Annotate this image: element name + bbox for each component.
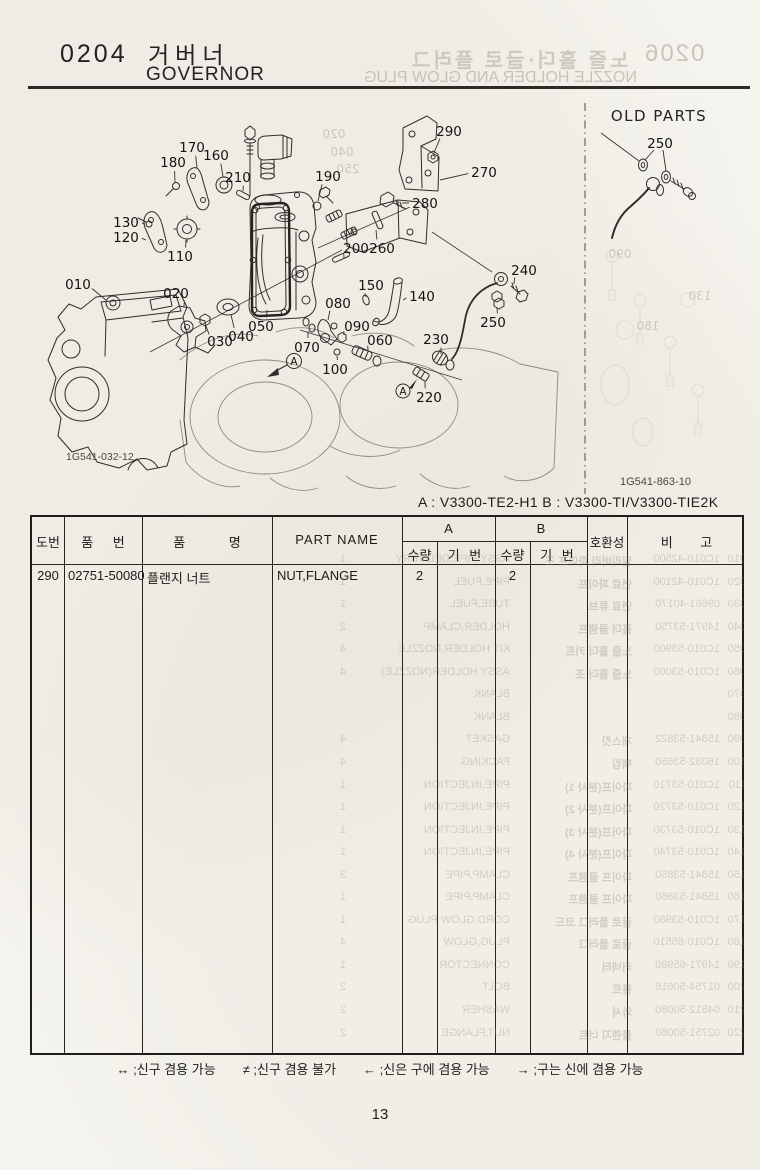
catalog-page: 0204 거버너 GOVERNOR 0206 노즐 홀더·글로 플러그 NOZZ… [0,0,760,1170]
bleed-cell: 1 [340,576,346,588]
bleed-cell: 노즐 홀더 키트 [516,643,632,659]
bleed-ghost-labels: 020040250090180130 [323,127,712,333]
assembly-axis-lines [150,207,492,380]
col-header-name-ko: 품 명 [142,532,272,551]
part-callout-160: 160 [203,148,229,164]
bleed-cell: 1 [340,779,346,791]
legend-item: → ;구는 신에 겸용 가능 [517,1059,644,1078]
bleed-cell: 1 [340,801,346,813]
bleed-section-number: 0206 [643,40,697,68]
bleed-cell: 파이프 클램프 [516,869,632,885]
bleed-cell: HOLDER,CLAMP [378,621,510,633]
bleed-row: 1PIPE,INJECTION파이프(분사 3)1C010-53730130 [322,824,744,846]
part-callout-060: 060 [367,333,393,349]
part-callout-220: 220 [416,390,442,406]
solenoid-drawing [245,126,293,196]
bleed-row: 2HOLDER,CLAMP홀더 클램프14971-53750040 [322,621,744,643]
bleed-cell: 170 [724,914,744,926]
bleed-row: 1ASSY PIPE,DELIVERY딜리버리 파이프 조1C010-42500… [322,553,744,575]
bleed-cell: CONNECTOR [378,959,510,971]
old-parts-label: OLD PARTS [611,107,707,125]
bleed-cell: 050 [724,643,744,655]
part-callout-260: 260 [369,241,395,257]
bleed-row: 1PIPE,INJECTION파이프(분사 2)1C010-53720120 [322,801,744,823]
bleed-cell: WASHER [378,1004,510,1016]
callout-leader-120 [142,238,146,240]
callout-leader-170 [196,156,197,168]
bleed-cell: 090 [724,733,744,745]
grommet-part [106,296,120,310]
callout-leader-140 [403,298,406,300]
bleed-cell: 노즐 홀더 조 [516,666,632,682]
bleed-cell: BOLT [378,981,510,993]
bleed-cell: 1C010-53900 [636,643,720,655]
old-parts-inset: OLD PARTS [601,107,707,238]
bleed-cell: 1C010-53740 [636,846,720,858]
bleed-cell: 4 [340,936,346,948]
part-callout-250: 250 [480,315,506,331]
bleed-row: 1TUBE,FUEL연료 튜브09661-40170030 [322,598,744,620]
bleed-cell: 2 [340,621,346,633]
bleed-cell: 와셔 [516,1004,632,1020]
section-number: 0204 [60,40,128,69]
col-header-part-name: PART NAME [272,532,402,547]
col-header-remarks: 비 고 [627,532,746,551]
view-marker-a-1: A [267,354,302,378]
bleed-cell: 4 [340,756,346,768]
bleed-cell: 14971-65980 [636,959,720,971]
bleed-cell: ASSY HOLDER(NOZZLE) [378,666,510,678]
bleed-cell: 3 [340,869,346,881]
bleed-row: 1CLAMP,PIPE파이프 클램프15841-53860160 [322,891,744,913]
bleed-cell: 연료 튜브 [516,598,632,614]
cell-part-no: 02751-50080 [68,568,145,583]
part-callout-100: 100 [322,362,348,378]
bleed-cell: 1 [340,598,346,610]
bleed-cell: NUT,FLANGE [378,1027,510,1039]
bleed-cell: 연료 파이프 [516,576,632,592]
bleed-cell: 글로 플러그 [516,936,632,952]
bleed-cell: 040 [724,621,744,633]
part-callout-070: 070 [294,340,320,356]
bleed-row: BLANK070 [322,688,744,710]
bleed-cell: 030 [724,598,744,610]
bleed-cell: 1 [340,824,346,836]
part-callout-010: 010 [65,277,91,293]
col-header-fig: 도번 [32,532,64,551]
part-callout-280: 280 [412,196,438,212]
bleed-ghost-label: 130 [689,289,712,303]
bleed-cell: 파이프(분사 1) [516,779,632,795]
bleed-cell: 1 [340,553,346,565]
callout-leader-130 [142,223,145,224]
bleed-cell: ASSY PIPE,DELIVERY [378,553,510,565]
bleed-cell: PLUG,GLOW [378,936,510,948]
bleed-cell: 1C010-42100 [636,576,720,588]
page-number: 13 [0,1106,760,1123]
part-callout-190: 190 [315,169,341,185]
bleed-row: 2NUT,FLANGE플랜지 너트02751-50080220 [322,1027,744,1049]
bleed-cell: 180 [724,936,744,948]
bleed-cell: 070 [724,688,744,700]
bleed-cell: PIPE,INJECTION [378,824,510,836]
bleed-cell: BLANK [378,711,510,723]
view-marker-a-2: A [396,379,417,398]
bleed-row: 2WASHER와셔04512-50080210 [322,1004,744,1026]
bleed-cell: 1C010-53720 [636,801,720,813]
bleed-cell: PACKING [378,756,510,768]
bleed-cell: 글로 플러그 코드 [516,914,632,930]
bleed-cell: CLAMP,PIPE [378,891,510,903]
part-callout-290: 290 [436,124,462,140]
upper-bracket-drawing [399,116,439,191]
bleed-cell: 1C010-53710 [636,779,720,791]
governor-parts-diagram: 020040250090180130 [0,90,760,500]
parts-table: 도번 품 번 품 명 PART NAME A B 수량 기 번 수량 기 번 호… [30,515,744,1055]
bleed-cell: 2 [340,1027,346,1039]
bleed-row: BLANK080 [322,711,744,733]
part-callout-150: 150 [358,278,384,294]
bleed-cell: 1 [340,846,346,858]
bleed-cell: PIPE,INJECTION [378,779,510,791]
callout-leader-270 [440,174,468,180]
bleed-cell: 딜리버리 파이프 조 [516,553,632,569]
part-callout-170: 170 [179,140,205,156]
bleed-cell: PIPE,INJECTION [378,846,510,858]
bell-housing-drawing [180,328,558,491]
diagram-code-right: 1G541-863-10 [620,476,691,488]
diagram-code-left: 1G541-032-12 [66,451,134,463]
bleed-cell: 플랜지 너트 [516,1027,632,1043]
part-callout-120: 120 [113,230,139,246]
bleed-cell: 15841-53822 [636,733,720,745]
cell-name-ko: 플랜지 너트 [147,568,210,587]
part-callout-080: 080 [325,296,351,312]
bleed-cell: 4 [340,666,346,678]
bleed-cell: 150 [724,869,744,881]
callout-leader-290 [434,138,440,153]
model-applicability-line: A : V3300-TE2-H1 B : V3300-TI/V3300-TIE2… [418,494,718,510]
bleed-cell: 1C010-53980 [636,914,720,926]
bleed-cell: 110 [724,779,744,791]
bleed-row: 1PIPE,INJECTION파이프(분사 4)1C010-53740140 [322,846,744,868]
bleed-through-rows: 1ASSY PIPE,DELIVERY딜리버리 파이프 조1C010-42500… [322,553,744,1051]
bleed-cell: 120 [724,801,744,813]
part-callout-110: 110 [167,249,193,265]
callout-leader-160 [221,164,223,177]
bleed-cell: 080 [724,711,744,723]
bleed-cell: 1C010-42500 [636,553,720,565]
part-callout-270: 270 [471,165,497,181]
bleed-cell: 190 [724,959,744,971]
table-gridline [402,541,587,542]
bleed-cell: 1C010-53730 [636,824,720,836]
bleed-row: 1PIPE,INJECTION파이프(분사 1)1C010-53710110 [322,779,744,801]
bleed-cell: CORD,GLOW PLUG [378,914,510,926]
bleed-cell: 130 [724,824,744,836]
bleed-cell: 020 [724,576,744,588]
bleed-cell: 1 [340,891,346,903]
bleed-row: 4GASKET개스킷15841-53822090 [322,733,744,755]
table-gridline [272,517,273,1053]
bleed-cell: 팩킹 [516,756,632,772]
part-callout-130: 130 [113,215,139,231]
bleed-row: 1CONNECTOR커넥터14971-65980190 [322,959,744,981]
part-callouts: 0100200300400500600700800901001101201301… [65,124,673,406]
bleed-cell: 140 [724,846,744,858]
callout-leader-190 [318,184,322,201]
bleed-cell: 220 [724,1027,744,1039]
bleed-cell: 1 [340,914,346,926]
bleed-cell: 14971-53750 [636,621,720,633]
legend-item: ≠ ;신구 겸용 불가 [243,1059,336,1078]
part-callout-050: 050 [248,319,274,335]
bleed-cell: BLANK [378,688,510,700]
part-callout-210: 210 [225,170,251,186]
bleed-cell: 15841-53860 [636,891,720,903]
header-rule [28,86,750,89]
governor-case-drawing [249,192,316,320]
cell-fig: 290 [32,568,64,583]
bleed-cell: 볼트 [516,981,632,997]
bleed-cell: GASKET [378,733,510,745]
bleed-cell: TUBE,FUEL [378,598,510,610]
bleed-cell: 010 [724,553,744,565]
bleed-cell: 4 [340,733,346,745]
bleed-cell: 파이프(분사 4) [516,846,632,862]
bleed-cell: PIPE,INJECTION [378,801,510,813]
bleed-cell: 16032-53650 [636,756,720,768]
bleed-cell: 2 [340,1004,346,1016]
bleed-ghost-label: 180 [637,319,660,333]
legend-item: ↔ ;신구 겸용 가능 [116,1059,215,1078]
bleed-row: 4PACKING팩킹16032-53650100 [322,756,744,778]
bleed-cell: 2 [340,981,346,993]
bleed-cell: 홀더 클램프 [516,621,632,637]
bleed-row: 2BOLT볼트01754-50616200 [322,981,744,1003]
part-callout-200: 200 [343,241,369,257]
bleed-ghost-shapes [601,250,704,446]
legend-item: ← ;신은 구에 겸용 가능 [363,1059,490,1078]
bleed-row: 4PLUG,GLOW글로 플러그1C010-65510180 [322,936,744,958]
callout-leader-040 [231,315,234,328]
bleed-cell: 4 [340,643,346,655]
bleed-cell: 파이프(분사 3) [516,824,632,840]
callout-leader-080 [328,311,330,320]
bleed-ghost-label: 020 [323,127,346,141]
bleed-cell: 커넥터 [516,959,632,975]
bleed-cell: 파이프(분사 2) [516,801,632,817]
bleed-ghost-label: 090 [609,247,632,261]
table-gridline [142,517,143,1053]
bleed-cell: 02751-50080 [636,1027,720,1039]
callout-leader-260 [376,230,377,239]
table-gridline [64,517,65,1053]
bleed-cell: CLAMP,PIPE [378,869,510,881]
part-callout-240: 240 [511,263,537,279]
bleed-row: 1CORD,GLOW PLUG글로 플러그 코드1C010-53980170 [322,914,744,936]
bleed-cell: 파이프 클램프 [516,891,632,907]
part-callout-090: 090 [344,319,370,335]
bleed-cell: 100 [724,756,744,768]
part-callout-180: 180 [160,155,186,171]
bleed-cell: 160 [724,891,744,903]
col-header-part-no: 품 번 [64,532,142,551]
bleed-ghost-label: 040 [331,145,354,159]
bleed-cell: 09661-40170 [636,598,720,610]
marker-a-letter: A [399,386,407,398]
part-callout-230: 230 [423,332,449,348]
page-title-english: GOVERNOR [146,64,265,86]
col-header-compat: 호환성 [587,532,627,551]
marker-a-letter: A [290,356,298,368]
gasket-cover-drawing [250,203,291,316]
bleed-cell: 1 [340,959,346,971]
bleed-cell: 1C010-53000 [636,666,720,678]
bleed-cell: 개스킷 [516,733,632,749]
bleed-cell: 200 [724,981,744,993]
bleed-cell: PIPE,FUEL [378,576,510,588]
bleed-row: 3CLAMP,PIPE파이프 클램프15841-53850150 [322,869,744,891]
bleed-cell: 1C010-65510 [636,936,720,948]
bleed-cell: 04512-50080 [636,1004,720,1016]
col-header-group-a: A [402,521,495,536]
engine-block-drawing [48,289,188,470]
col-header-group-b: B [495,521,587,536]
bleed-row: 1PIPE,FUEL연료 파이프1C010-42100020 [322,576,744,598]
bleed-cell: 210 [724,1004,744,1016]
bleed-row: 4KIT HOLDER,NOZZLE노즐 홀더 키트1C010-53900050 [322,643,744,665]
compatibility-legend: ↔ ;신구 겸용 가능 ≠ ;신구 겸용 불가 ← ;신은 구에 겸용 가능 →… [0,1059,760,1078]
bleed-cell: KIT HOLDER,NOZZLE [378,643,510,655]
bleed-cell: 060 [724,666,744,678]
part-callout-020: 020 [163,286,189,302]
part-callout-250: 250 [647,136,673,152]
bleed-title-english: NOZZLE HOLDER AND GLOW PLUG [356,69,644,87]
bleed-row: 4ASSY HOLDER(NOZZLE)노즐 홀더 조1C010-5300006… [322,666,744,688]
bleed-cell: 15841-53850 [636,869,720,881]
bleed-cell: 01754-50616 [636,981,720,993]
part-callout-140: 140 [409,289,435,305]
